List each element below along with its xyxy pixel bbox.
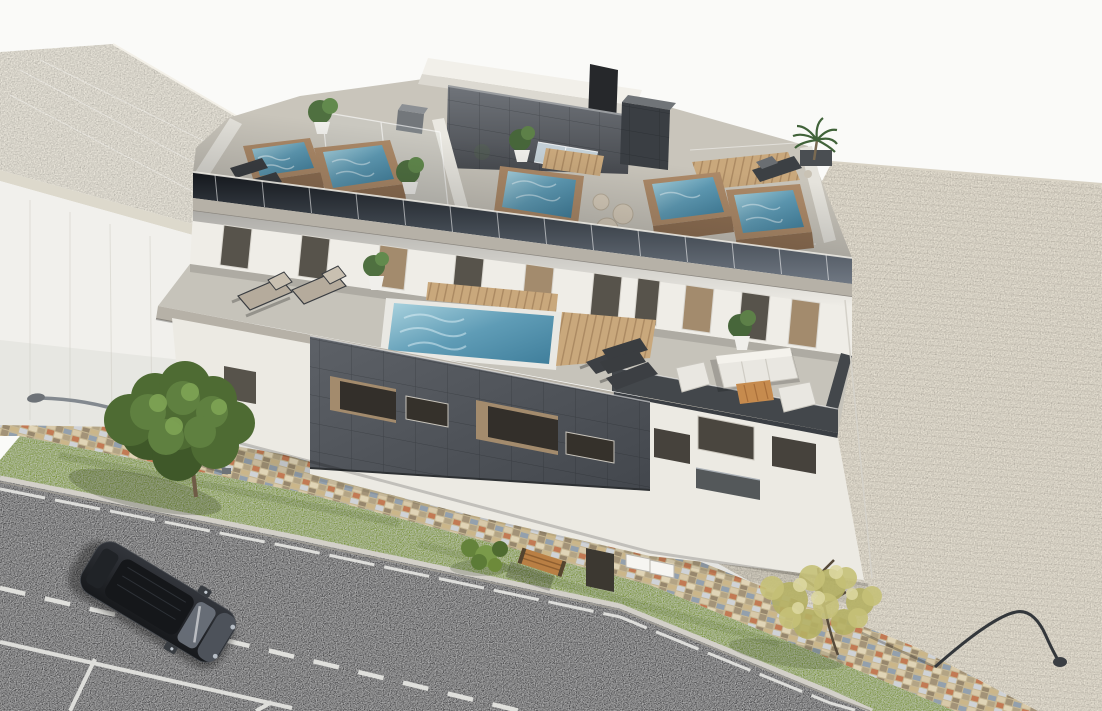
coffee-table — [736, 380, 774, 404]
entrance-door — [586, 548, 614, 592]
render-scene — [0, 0, 1102, 711]
architectural-render — [0, 0, 1102, 711]
lamp-head — [1053, 657, 1067, 667]
